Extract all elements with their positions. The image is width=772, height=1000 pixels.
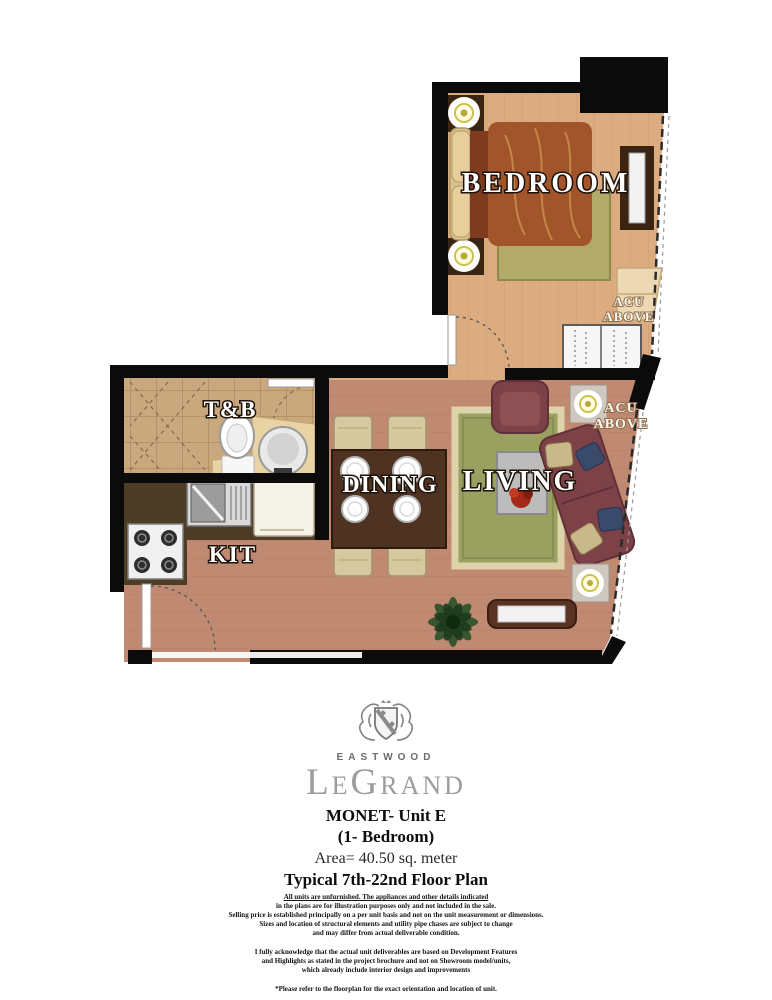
svg-text:ACU: ACU (604, 401, 637, 416)
svg-text:ACU: ACU (613, 294, 644, 309)
unit-name: MONET- Unit E (0, 806, 772, 826)
floor-range: Typical 7th-22nd Floor Plan (0, 870, 772, 890)
floor-plan-drawing: BEDROOM T&B DINING LIVING KIT ACU ABOVE … (0, 0, 772, 690)
tv-screen (629, 153, 645, 223)
svg-text:ABOVE: ABOVE (594, 417, 649, 432)
potted-plant (428, 597, 478, 647)
bedroom-door-leaf (448, 315, 456, 365)
dining-label: DINING (342, 472, 437, 498)
disclaimer-block: All units are unfurnished. The appliance… (0, 893, 772, 1000)
entry-door-leaf (142, 584, 151, 648)
disclaimer-note: *Please refer to the floorplan for the e… (0, 985, 772, 994)
unit-type: (1- Bedroom) (0, 827, 772, 847)
column-block (580, 57, 668, 113)
stove-icon (128, 524, 183, 579)
disclaimer-paragraph-1: All units are unfurnished. The appliance… (0, 893, 772, 938)
branding-block: EASTWOOD LeGrand MONET- Unit E (1- Bedro… (0, 700, 772, 890)
tb-label: T&B (204, 397, 257, 422)
kitchen-label: KIT (209, 542, 257, 567)
unit-area: Area= 40.50 sq. meter (0, 850, 772, 868)
bedroom-label: BEDROOM (462, 168, 631, 199)
living-label: LIVING (463, 466, 578, 497)
floor-plan-page: BEDROOM T&B DINING LIVING KIT ACU ABOVE … (0, 0, 772, 1000)
disclaimer-paragraph-2: I fully acknowledge that the actual unit… (0, 948, 772, 975)
eastwood-crest-icon (353, 700, 419, 750)
svg-text:ABOVE: ABOVE (603, 309, 654, 324)
entry-threshold (152, 652, 362, 658)
brand-name: LeGrand (0, 764, 772, 801)
bathroom-sliding-door (268, 379, 314, 387)
refrigerator-icon (254, 478, 314, 536)
acu-closet (563, 325, 641, 371)
